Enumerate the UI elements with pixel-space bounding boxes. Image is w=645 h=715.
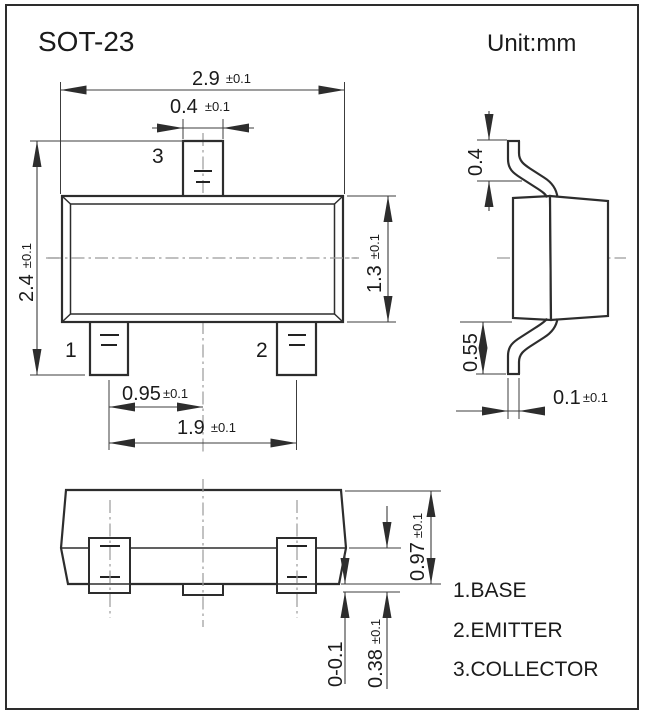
dim-lead-span: 1.9±0.1 <box>177 417 236 439</box>
pin-legend: 1.BASE 2.EMITTER 3.COLLECTOR <box>453 579 599 681</box>
top-lead-edge <box>508 141 547 198</box>
side-body-front-face <box>513 196 551 320</box>
dim-pin3-width: 0.4±0.1 <box>170 96 230 118</box>
dim-shoulder-height: 0.38±0.1 <box>365 619 387 688</box>
legend-base: 1.BASE <box>453 579 527 602</box>
bottom-lead-edge <box>508 319 547 375</box>
datasheet-page: SOT-23 Unit:mm 3 1 2 2.9±0 <box>0 0 645 715</box>
side-body-right-face <box>550 196 608 320</box>
page-border <box>6 5 638 709</box>
page-title: SOT-23 <box>38 26 134 57</box>
front-view: 3 1 2 <box>46 133 359 453</box>
dim-lower-lead-drop: 0.55 <box>460 333 482 372</box>
dim-overall-length: 2.4±0.1 <box>16 243 38 302</box>
pin1-lead <box>90 322 128 375</box>
dim-body-width: 2.9±0.1 <box>192 68 251 90</box>
dim-body-length: 1.3±0.1 <box>364 234 386 293</box>
legend-collector: 3.COLLECTOR <box>453 658 599 681</box>
dim-lead-pitch: 0.95±0.1 <box>122 383 188 405</box>
bottom-view <box>61 479 346 627</box>
package-body-outline <box>62 196 343 322</box>
dim-package-height: 0.97±0.1 <box>407 513 429 581</box>
pin1-number: 1 <box>65 339 77 362</box>
unit-label: Unit:mm <box>487 30 576 57</box>
dim-lead-thickness: 0.1±0.1 <box>553 387 608 409</box>
sot23-package-drawing: SOT-23 Unit:mm 3 1 2 2.9±0 <box>0 0 645 715</box>
pin2-lead <box>277 322 316 375</box>
pin2-number: 2 <box>256 339 268 362</box>
dim-standoff: 0-0.1 <box>325 641 347 687</box>
legend-emitter: 2.EMITTER <box>453 619 563 642</box>
pin3-number: 3 <box>152 145 164 168</box>
dim-upper-lead-drop: 0.4 <box>465 148 487 176</box>
side-view <box>497 141 626 374</box>
